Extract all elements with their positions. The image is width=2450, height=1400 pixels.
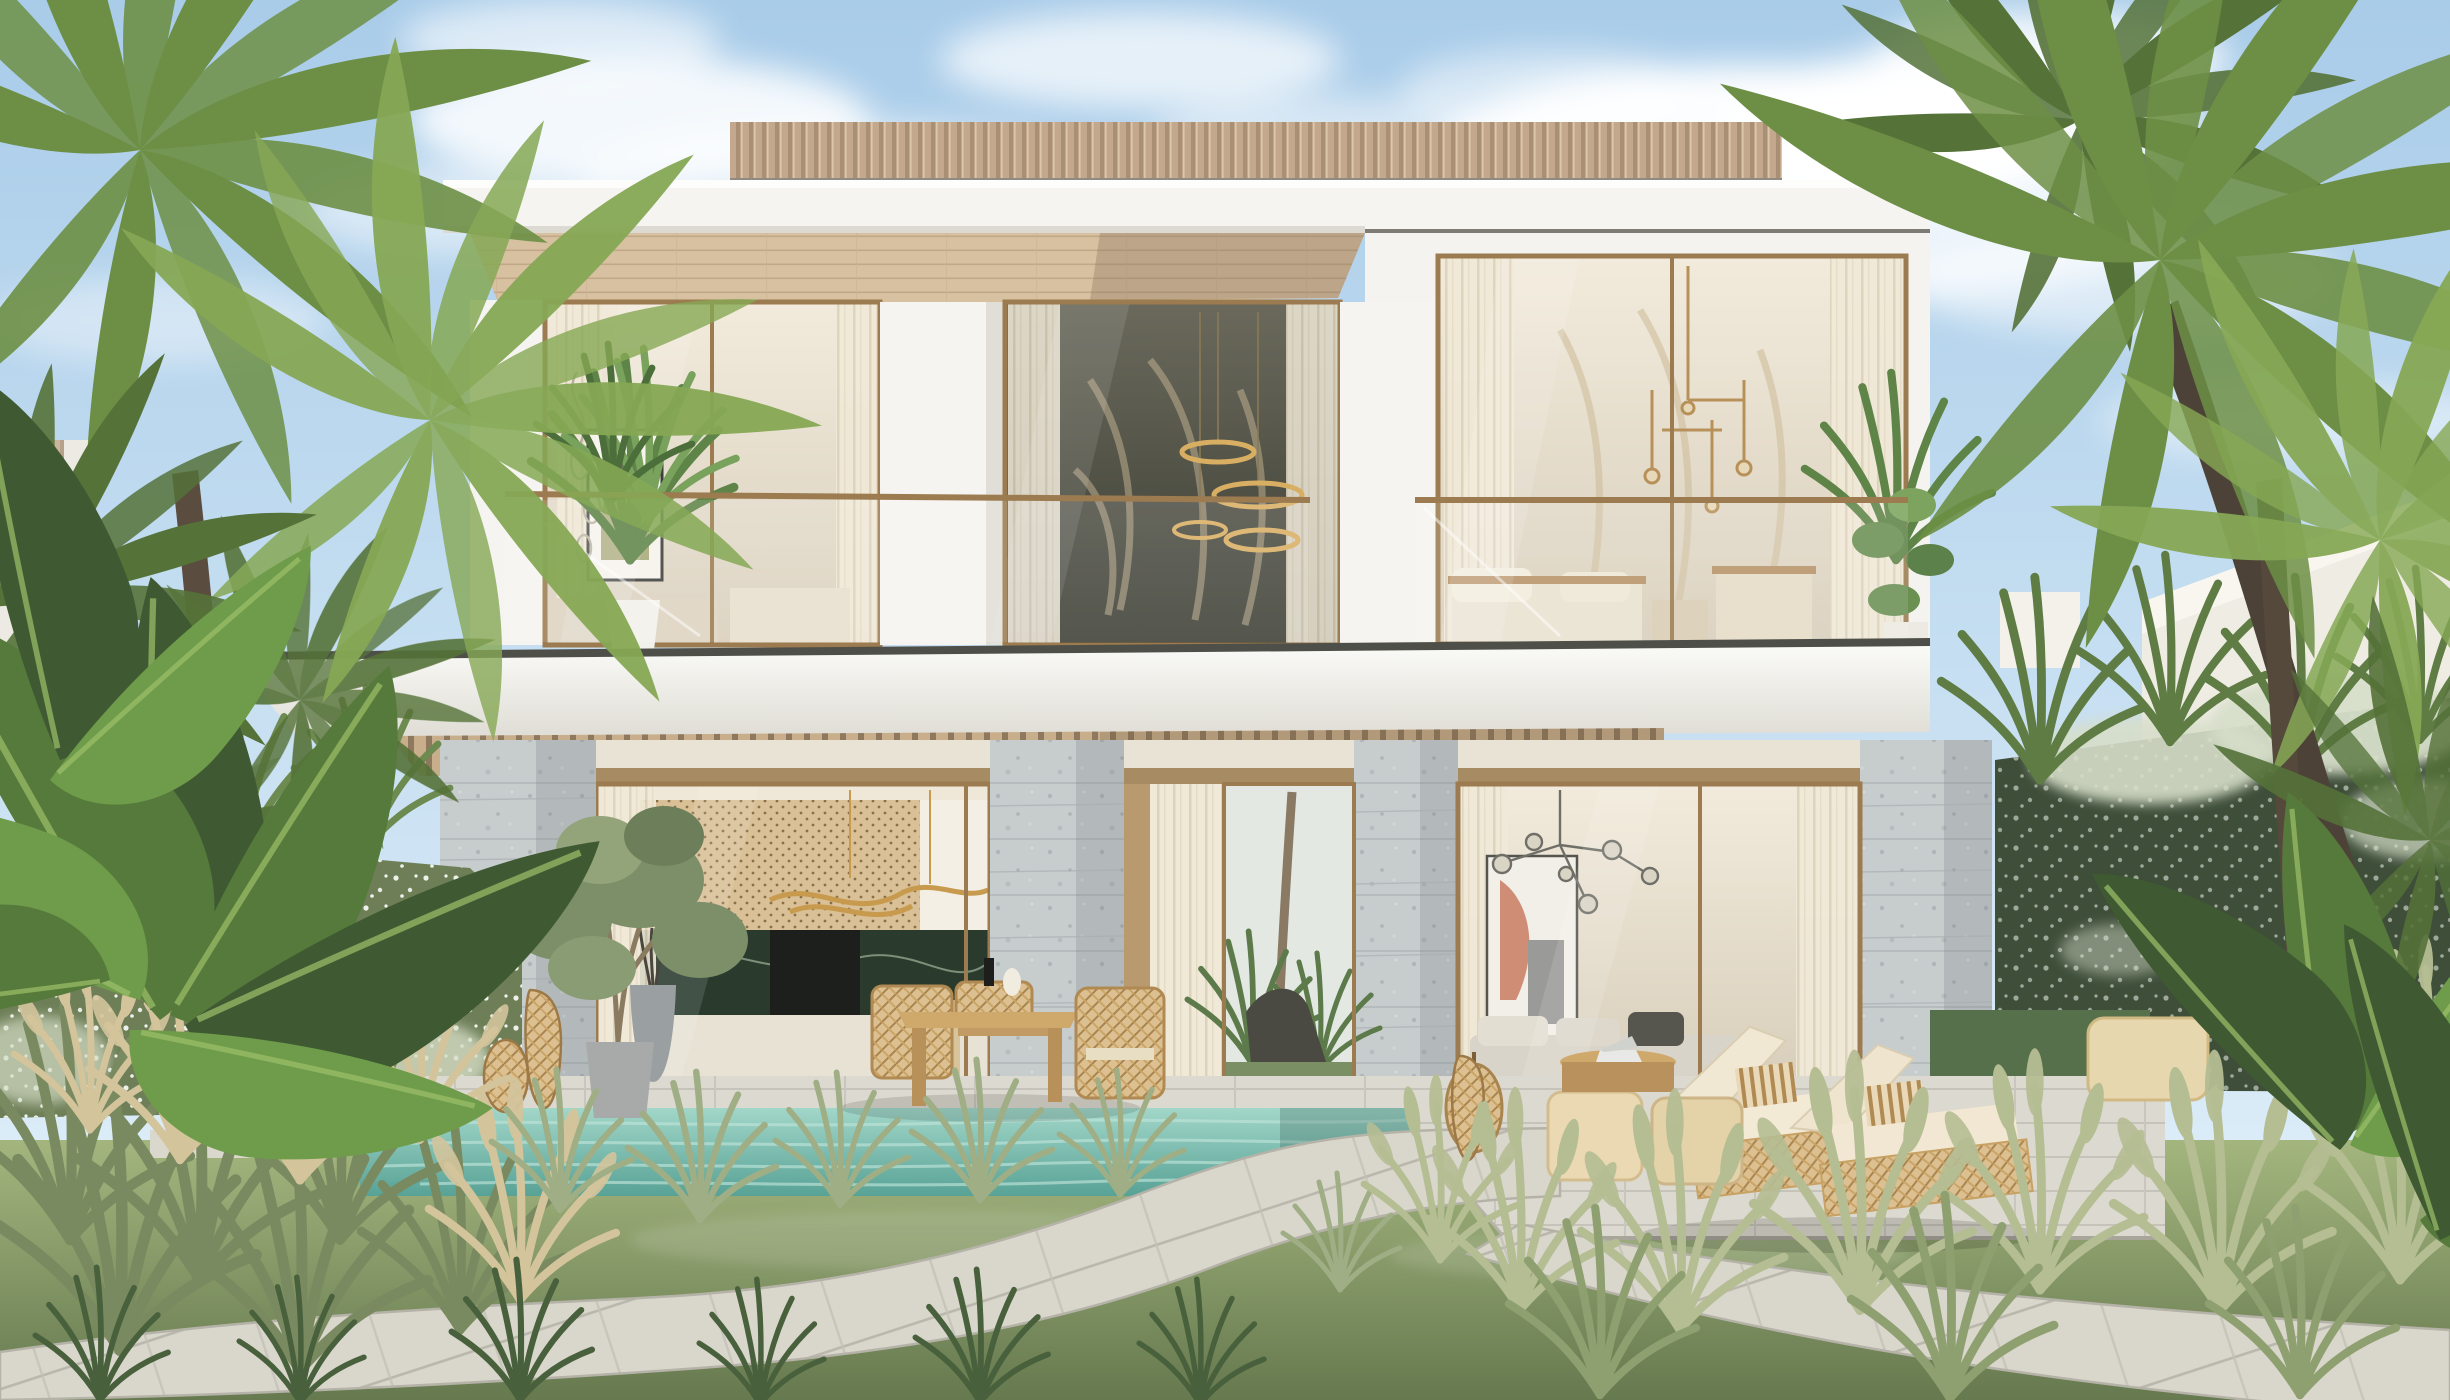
stone-column <box>1354 740 1458 1088</box>
rendered-photo <box>0 0 2450 1400</box>
ground-window-living <box>1458 784 1860 1089</box>
villa-exterior-render <box>0 0 2450 1400</box>
roof-slat-parapet <box>730 122 1782 182</box>
balcony-glass-railing <box>505 494 1908 642</box>
